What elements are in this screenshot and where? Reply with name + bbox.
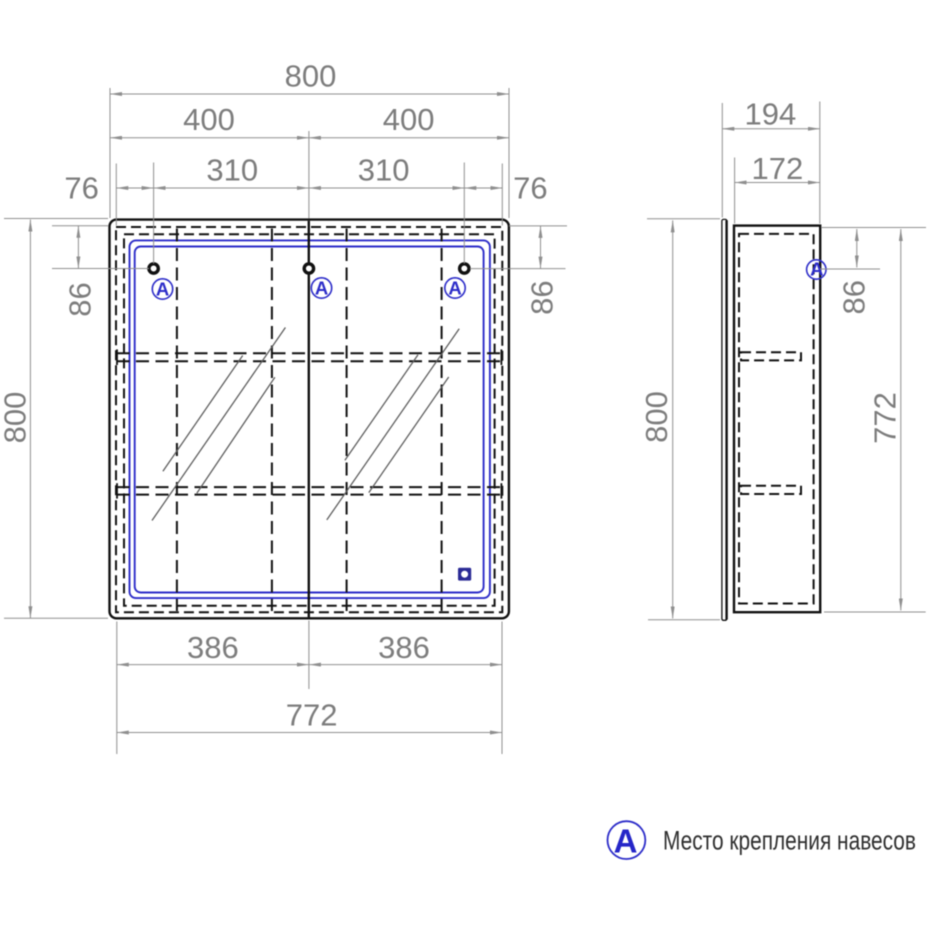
svg-text:86: 86 (524, 280, 559, 314)
svg-text:800: 800 (639, 391, 674, 443)
svg-text:772: 772 (286, 698, 338, 733)
svg-text:800: 800 (0, 392, 32, 444)
svg-text:310: 310 (206, 152, 258, 187)
svg-text:86: 86 (62, 282, 97, 316)
svg-text:Место крепления навесов: Место крепления навесов (663, 825, 916, 855)
svg-text:A: A (614, 822, 638, 859)
svg-text:386: 386 (378, 630, 430, 665)
svg-text:194: 194 (745, 97, 797, 132)
svg-text:310: 310 (358, 152, 410, 187)
svg-text:386: 386 (187, 630, 239, 665)
svg-text:400: 400 (383, 102, 435, 137)
svg-text:76: 76 (64, 170, 98, 205)
svg-text:800: 800 (285, 59, 337, 94)
svg-text:A: A (156, 279, 169, 300)
svg-text:400: 400 (183, 102, 235, 137)
svg-text:772: 772 (867, 392, 902, 444)
svg-text:A: A (315, 278, 328, 299)
svg-text:76: 76 (513, 170, 547, 205)
svg-text:172: 172 (752, 151, 804, 186)
svg-text:A: A (448, 278, 461, 299)
svg-text:86: 86 (836, 280, 871, 314)
